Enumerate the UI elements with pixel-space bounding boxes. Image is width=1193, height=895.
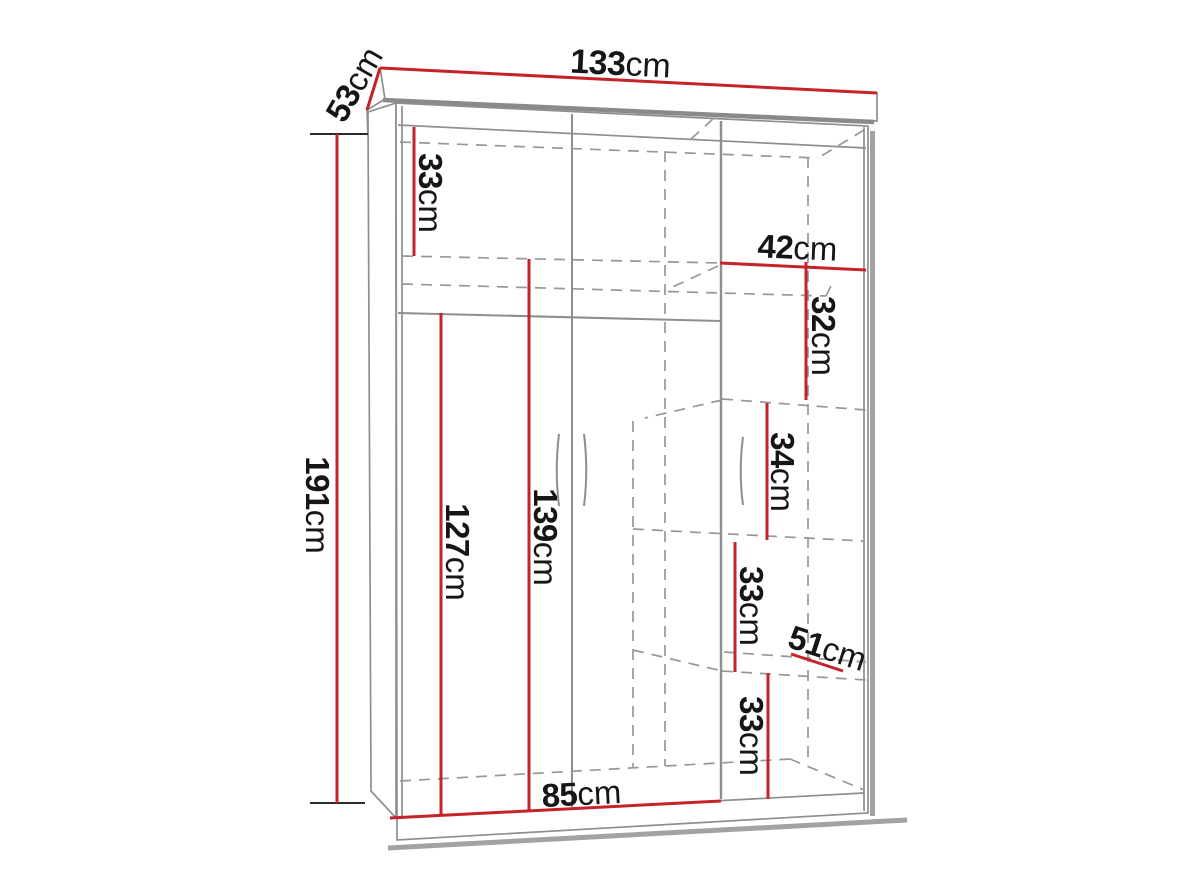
dim-right-shelf-33-label: 33cm [733, 566, 770, 646]
dim-height-191: 191cm [299, 134, 368, 803]
dim-right-width-42-label: 42cm [757, 227, 838, 267]
dim-height-191-label: 191cm [299, 456, 336, 554]
dim-clearance-139-label: 139cm [527, 488, 564, 586]
dim-clearance-127-label: 127cm [439, 503, 476, 601]
diagram-canvas: 133cm 53cm 191cm 33cm 42cm 32cm 34cm [0, 0, 1193, 895]
left-side-panel [368, 103, 396, 818]
dim-right-shelf-32-label: 32cm [805, 296, 842, 376]
dim-top-shelf-33-label: 33cm [412, 153, 449, 233]
dim-right-bottom-33-label: 33cm [733, 696, 770, 776]
wardrobe-diagram: 133cm 53cm 191cm 33cm 42cm 32cm 34cm [0, 0, 1193, 895]
dim-left-width-85-label: 85cm [541, 773, 623, 814]
dim-right-shelf-34-label: 34cm [764, 432, 801, 512]
dim-width-133-label: 133cm [569, 43, 671, 86]
